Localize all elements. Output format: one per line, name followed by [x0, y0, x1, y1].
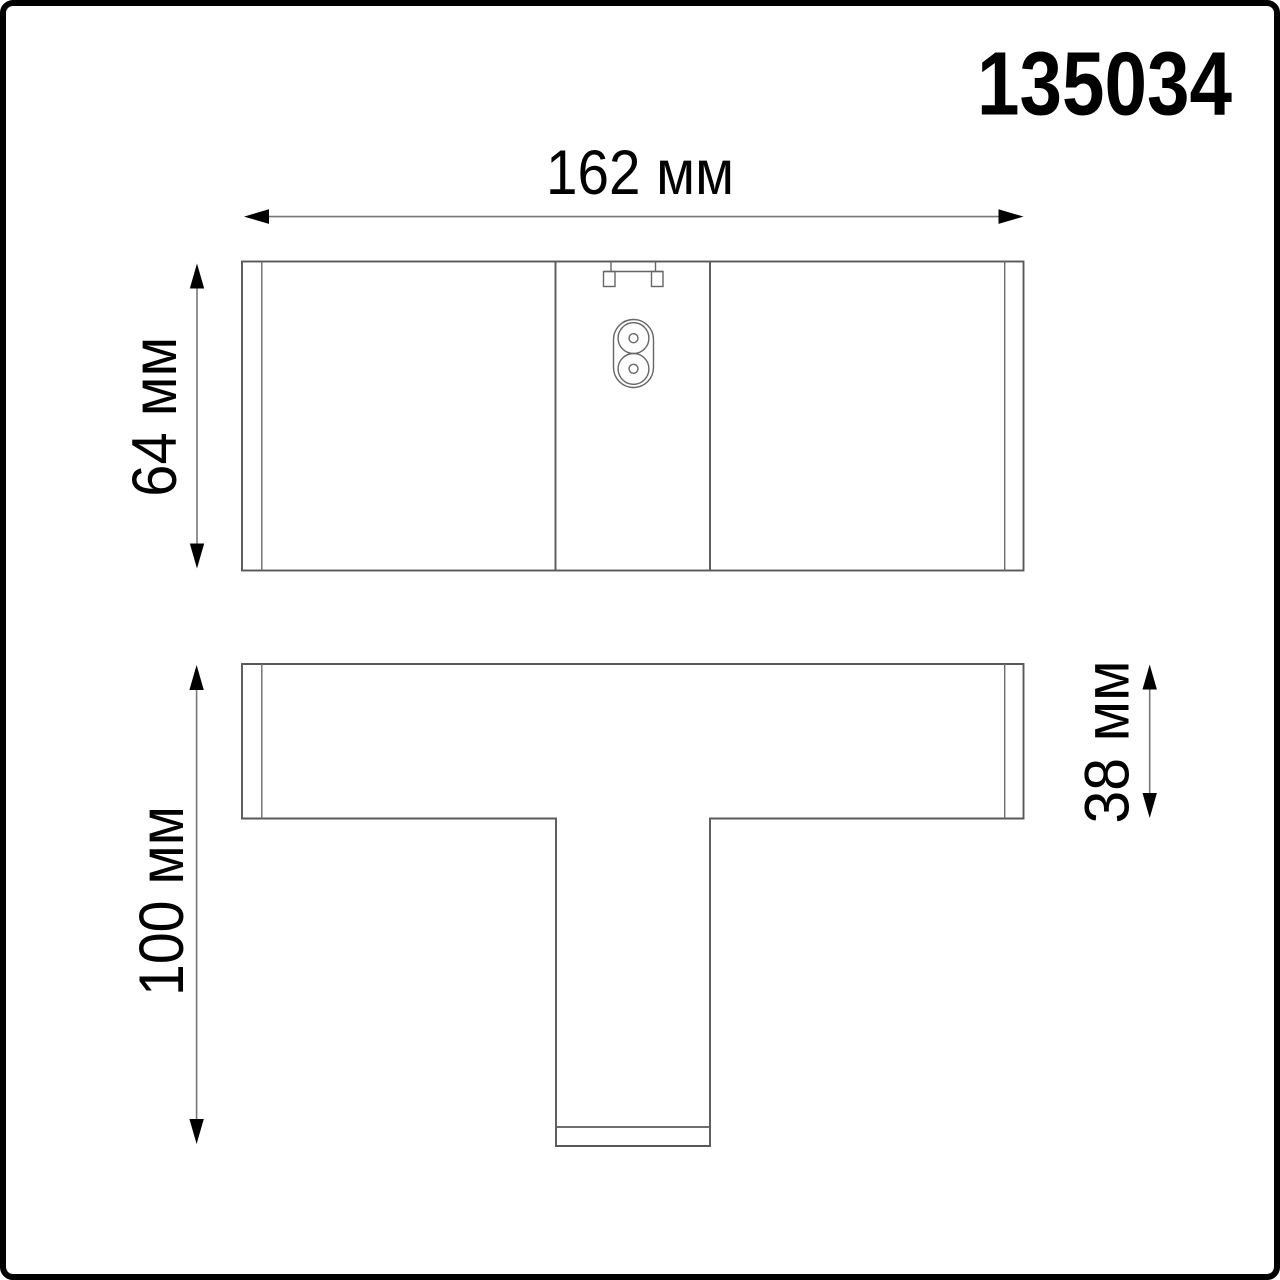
svg-text:100 мм: 100 мм [127, 806, 197, 996]
svg-text:162 мм: 162 мм [546, 138, 734, 208]
svg-text:64 мм: 64 мм [120, 337, 190, 497]
svg-text:38 мм: 38 мм [1073, 661, 1143, 824]
svg-text:135034: 135034 [977, 35, 1232, 135]
